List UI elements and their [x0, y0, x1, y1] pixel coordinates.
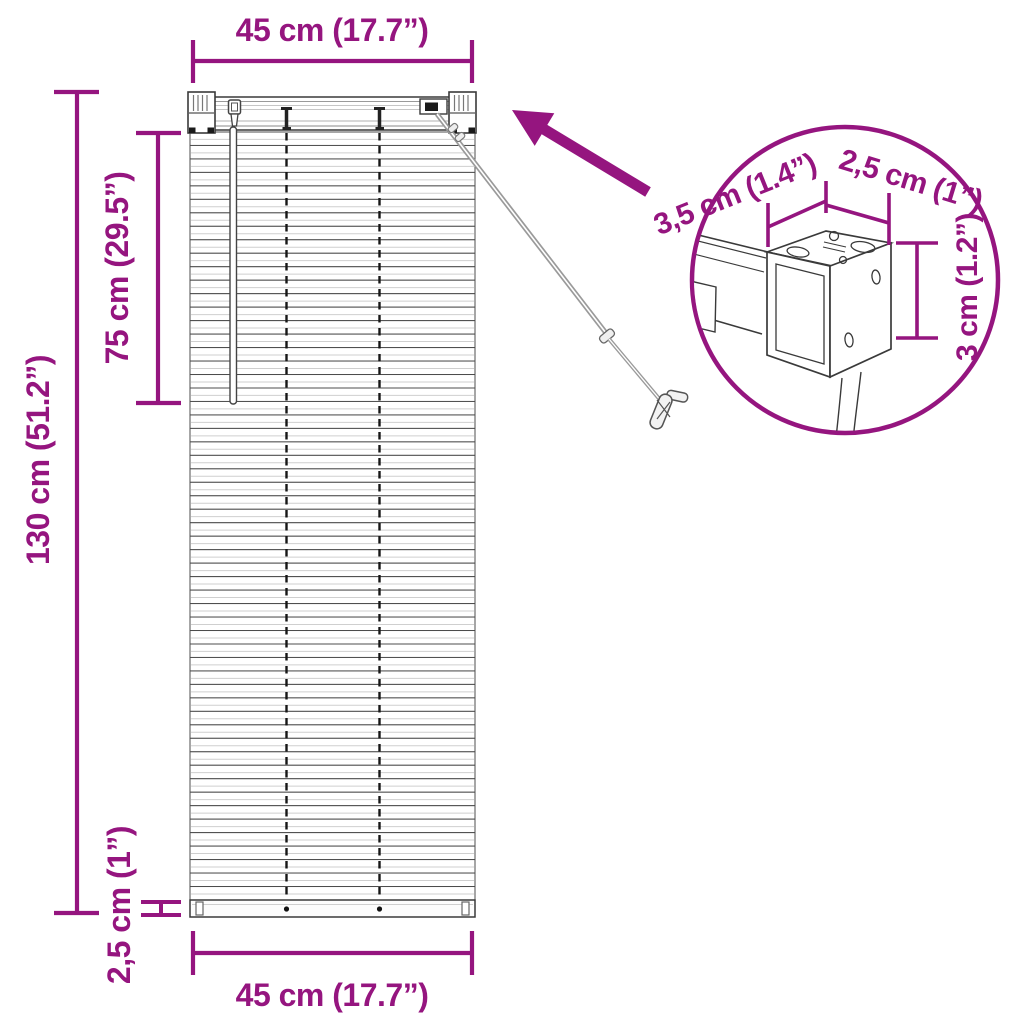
slat: [190, 725, 475, 738]
zoom-callout-arrow: [512, 110, 651, 197]
slat: [190, 631, 475, 644]
product-dimension-diagram: 45 cm (17.7”) 45 cm (17.7”) 130 cm (51.2…: [0, 0, 1024, 1024]
slat: [190, 711, 475, 724]
slat: [190, 779, 475, 792]
slat: [190, 442, 475, 455]
slat: [190, 523, 475, 536]
diagram-canvas: 45 cm (17.7”) 45 cm (17.7”) 130 cm (51.2…: [0, 0, 1024, 1024]
slat: [190, 455, 475, 468]
slat: [190, 792, 475, 805]
bottom-rail-label: 2,5 cm (1”): [101, 826, 137, 984]
top-width-label: 45 cm (17.7”): [236, 12, 429, 48]
slat: [190, 617, 475, 630]
slat: [190, 604, 475, 617]
slat: [190, 806, 475, 819]
dim-bottom-rail-height: 2,5 cm (1”): [101, 826, 181, 984]
bottom-rail: [190, 900, 475, 917]
dim-total-height: 130 cm (51.2”): [20, 92, 99, 913]
slat: [190, 509, 475, 522]
slat: [190, 860, 475, 873]
total-height-label: 130 cm (51.2”): [20, 355, 56, 565]
slat: [190, 738, 475, 751]
dim-top-width: 45 cm (17.7”): [193, 12, 472, 83]
slat: [190, 887, 475, 900]
slat: [190, 833, 475, 846]
venetian-blind: [188, 92, 688, 917]
slat: [190, 577, 475, 590]
slat: [190, 698, 475, 711]
slat: [190, 563, 475, 576]
mounting-bracket-inset: 3,5 cm (1.4”) 2,5 cm (1”) 3 cm (1.2”): [649, 127, 998, 440]
slat: [190, 765, 475, 778]
slat: [190, 846, 475, 859]
slat: [190, 671, 475, 684]
slat: [190, 428, 475, 441]
slat: [190, 644, 475, 657]
slat: [190, 752, 475, 765]
dim-bottom-width: 45 cm (17.7”): [193, 931, 472, 1013]
slat: [190, 496, 475, 509]
upper-height-label: 75 cm (29.5”): [99, 172, 135, 365]
slat: [190, 657, 475, 670]
slat: [190, 550, 475, 563]
headrail-bracket-left: [188, 92, 215, 133]
slat: [190, 590, 475, 603]
slat: [190, 415, 475, 428]
cord-lock: [420, 99, 447, 114]
slat: [190, 482, 475, 495]
slat: [190, 536, 475, 549]
slat: [190, 684, 475, 697]
bottom-width-label: 45 cm (17.7”): [236, 977, 429, 1013]
slat: [190, 873, 475, 886]
slat: [190, 819, 475, 832]
bracket-height-label: 3 cm (1.2”): [951, 213, 984, 361]
dim-upper-height: 75 cm (29.5”): [99, 133, 181, 403]
slat: [190, 469, 475, 482]
